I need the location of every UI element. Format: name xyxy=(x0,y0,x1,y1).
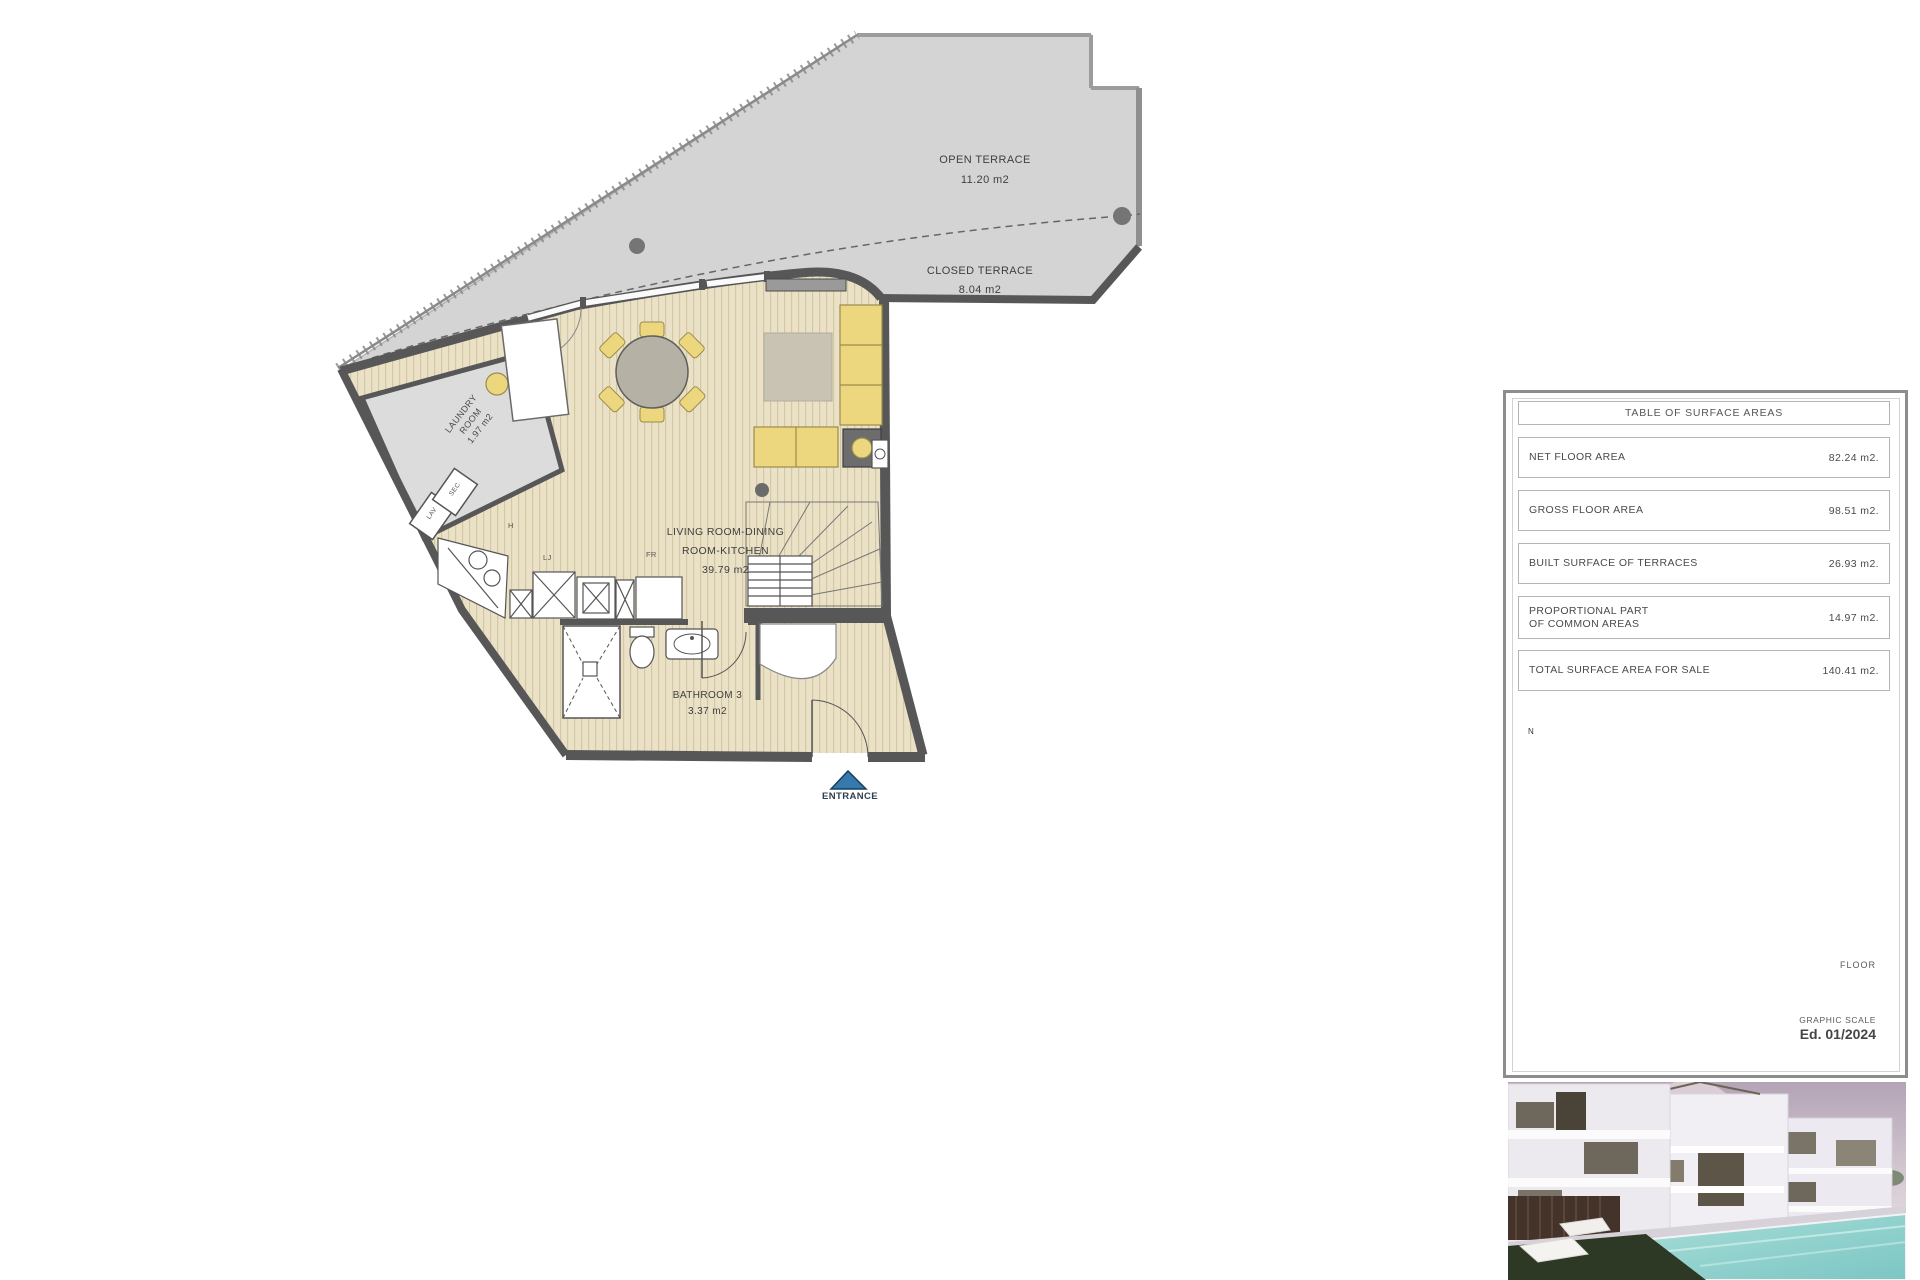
entrance-label: ENTRANCE xyxy=(808,791,892,802)
wall-niche xyxy=(872,440,888,468)
open-terrace-label: OPEN TERRACE 11.20 m2 xyxy=(905,150,1065,190)
graphic-scale-label: GRAPHIC SCALE xyxy=(1744,1015,1876,1025)
table-row: TOTAL SURFACE AREA FOR SALE 140.41 m2. xyxy=(1518,650,1890,691)
dishwasher-label: LJ xyxy=(543,553,552,562)
table-row: PROPORTIONAL PART OF COMMON AREAS 14.97 … xyxy=(1518,596,1890,639)
surface-table-title: TABLE OF SURFACE AREAS xyxy=(1518,401,1890,425)
rug xyxy=(764,333,832,401)
page: 0 1 2 3 4 xyxy=(0,0,1920,1280)
north-label: N xyxy=(1528,727,1540,736)
table-row: GROSS FLOOR AREA 98.51 m2. xyxy=(1518,490,1890,531)
bathroom-label: BATHROOM 3 3.37 m2 xyxy=(645,688,770,720)
living-room-label: LIVING ROOM-DINING ROOM-KITCHEN 39.79 m2 xyxy=(638,523,813,580)
building-render-photo xyxy=(1508,1080,1906,1280)
closed-terrace-label: CLOSED TERRACE 8.04 m2 xyxy=(900,262,1060,300)
tv-sideboard xyxy=(766,279,846,291)
table-row: NET FLOOR AREA 82.24 m2. xyxy=(1518,437,1890,478)
edition-label: Ed. 01/2024 xyxy=(1744,1026,1876,1042)
floor-drain xyxy=(755,483,769,497)
entrance-arrow-icon xyxy=(831,771,866,789)
table-row: BUILT SURFACE OF TERRACES 26.93 m2. xyxy=(1518,543,1890,584)
floor-label: FLOOR xyxy=(1788,960,1876,970)
hood-label: H xyxy=(508,521,514,530)
fridge-label: FR xyxy=(646,550,657,559)
stair-wall-band xyxy=(744,608,890,623)
